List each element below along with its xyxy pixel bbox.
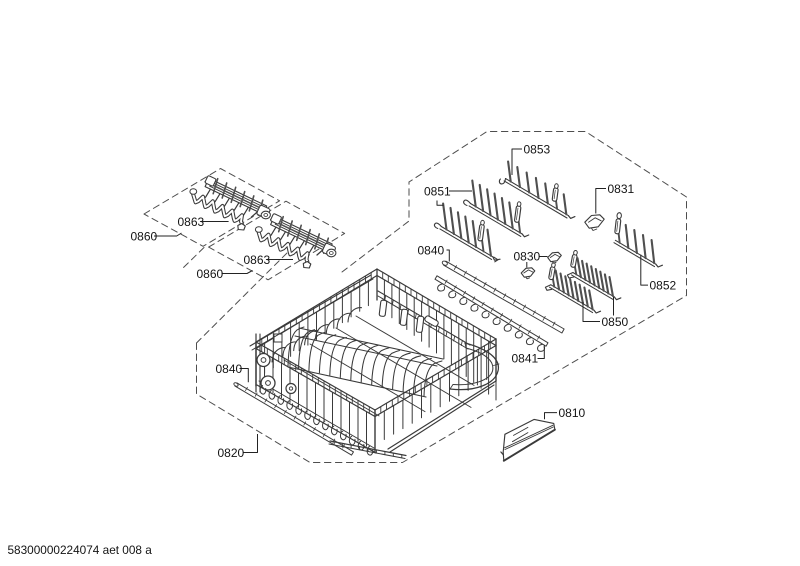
svg-text:0851: 0851 [424,185,451,199]
svg-text:58300000224074 aet 008 a: 58300000224074 aet 008 a [8,543,153,557]
svg-text:0830: 0830 [514,250,541,264]
svg-text:0860: 0860 [197,267,224,281]
svg-text:0810: 0810 [559,406,586,420]
svg-text:0850: 0850 [602,315,629,329]
svg-text:0863: 0863 [178,215,205,229]
svg-text:0863: 0863 [244,253,271,267]
svg-text:0840: 0840 [418,244,445,258]
svg-text:0841: 0841 [512,352,539,366]
svg-text:0840: 0840 [216,362,243,376]
svg-text:0831: 0831 [608,182,635,196]
svg-text:0852: 0852 [650,279,677,293]
svg-text:0853: 0853 [524,143,551,157]
svg-text:0820: 0820 [218,446,245,460]
svg-text:0860: 0860 [131,230,158,244]
